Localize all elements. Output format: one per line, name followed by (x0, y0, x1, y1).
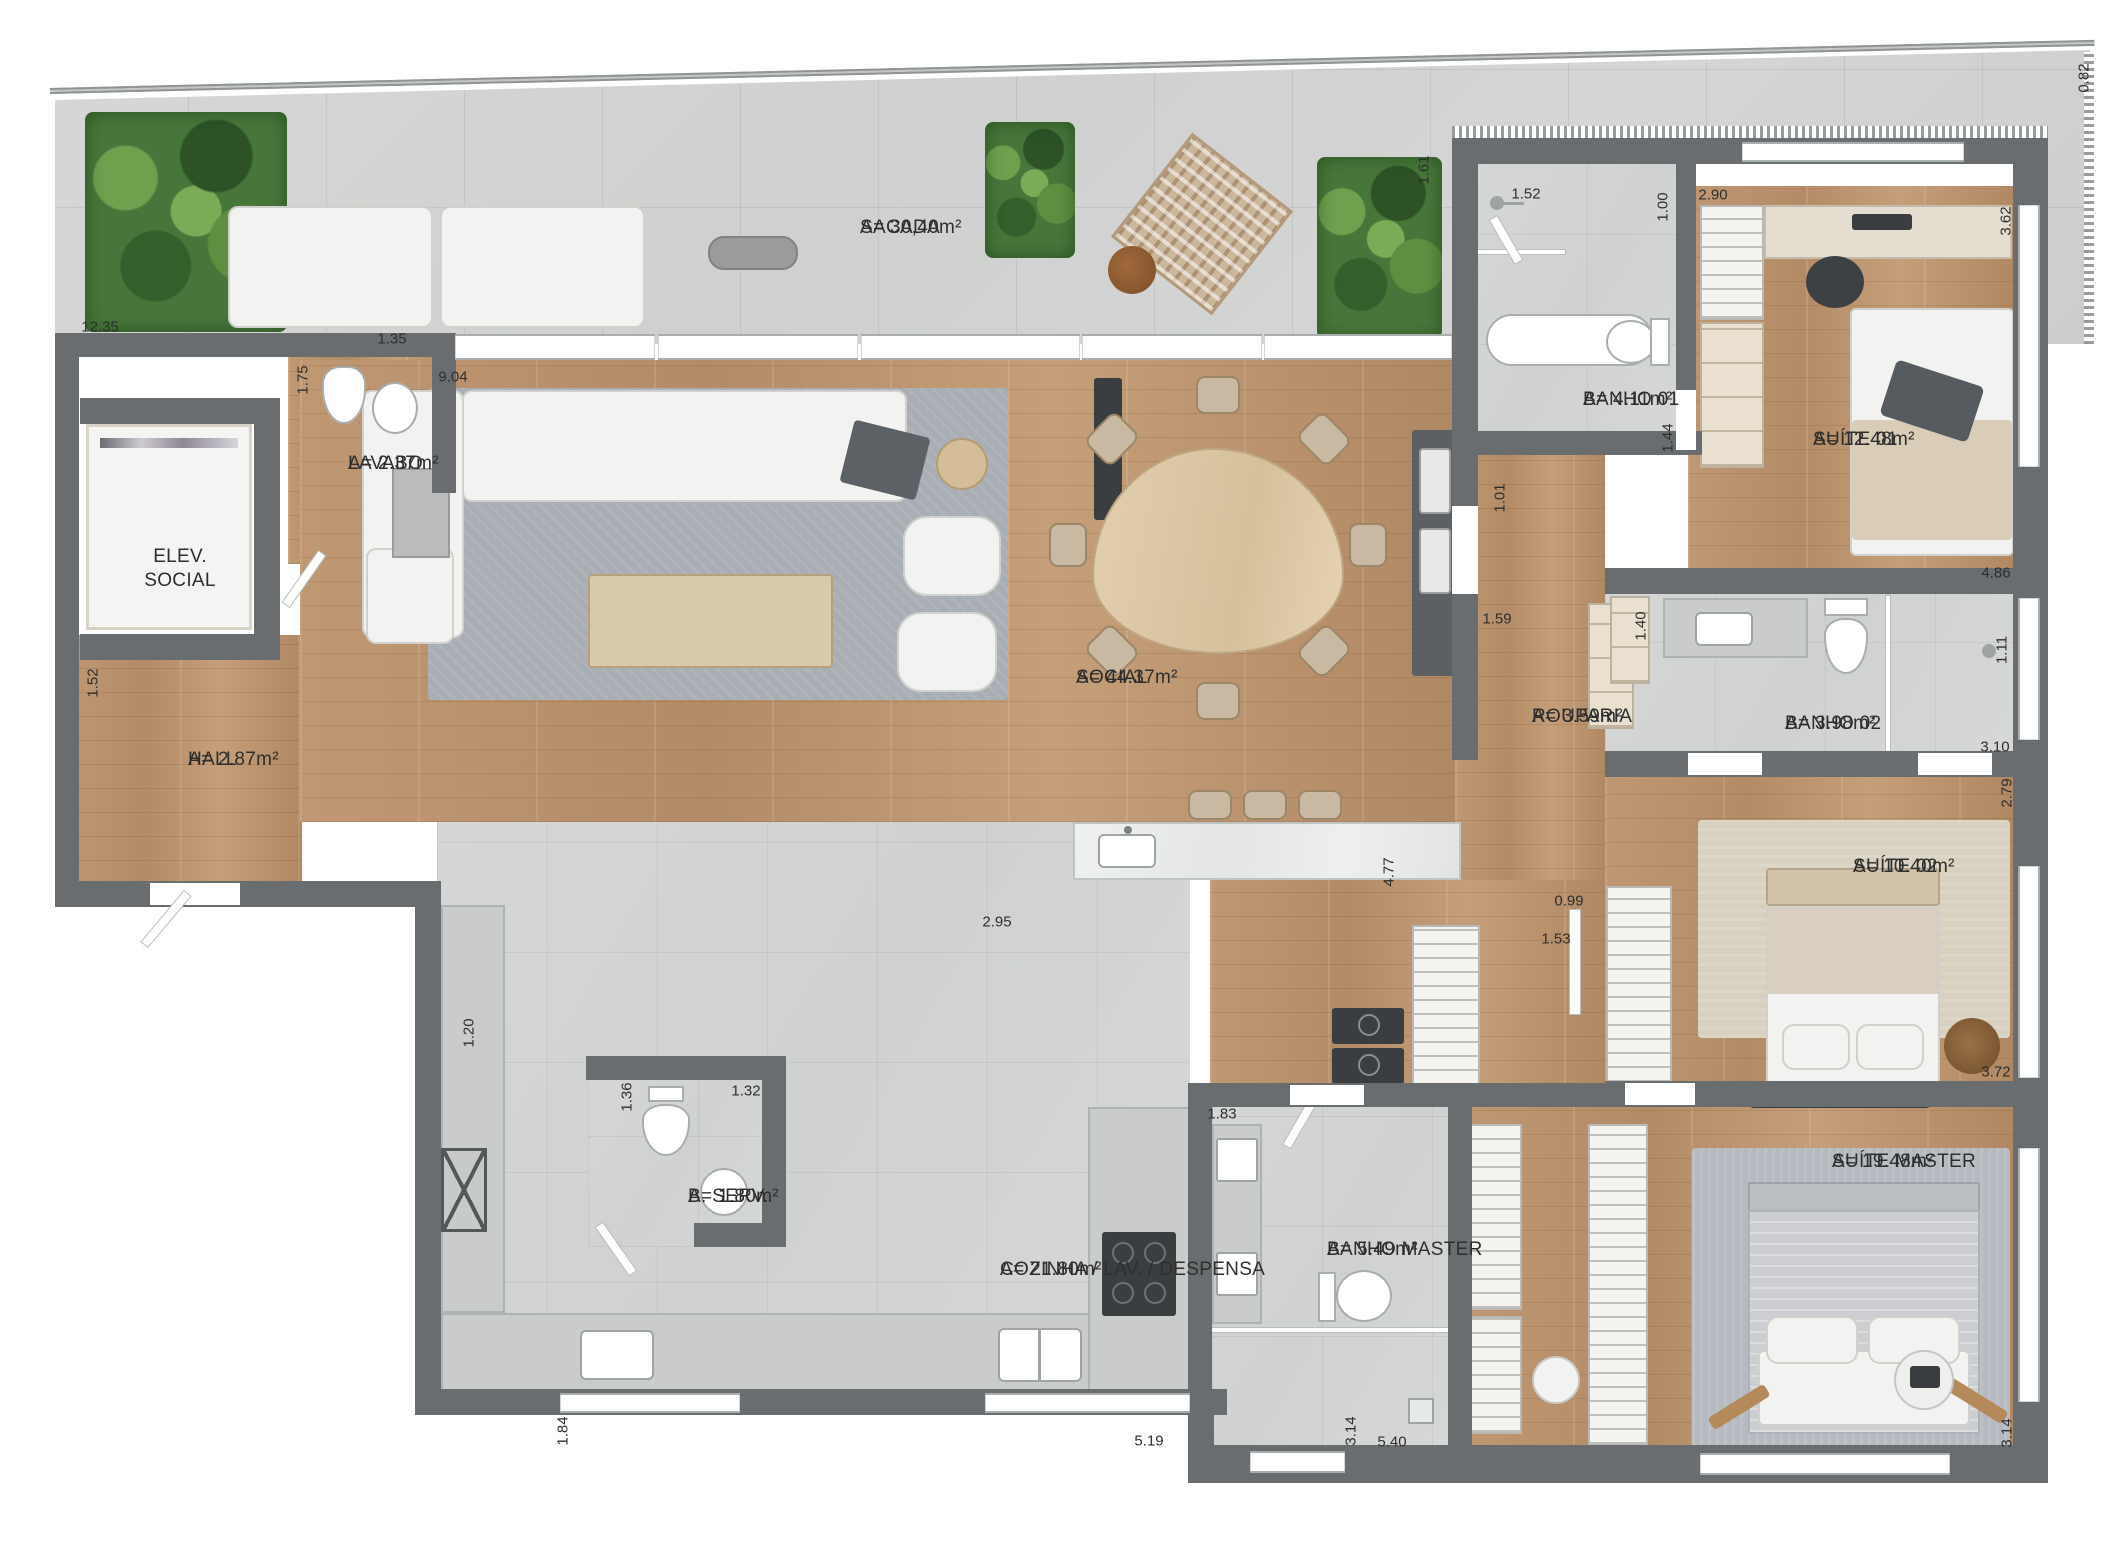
shower-glass-banho1 (1477, 250, 1565, 254)
banho2-toilet-tank (1824, 598, 1868, 616)
island-stool (1243, 790, 1287, 820)
dim-label: 1.53 (1541, 931, 1570, 948)
window (560, 1393, 740, 1413)
dryer-door (1358, 1054, 1380, 1076)
dim-label: 1.83 (1207, 1106, 1236, 1123)
window (2018, 205, 2040, 467)
window (1082, 334, 1262, 360)
balcony-pouf (1108, 246, 1156, 294)
elevator-door-bar (100, 438, 238, 448)
door-gap (1918, 753, 1992, 775)
room-area: A= 5.49m² (1327, 1238, 1418, 1262)
dim-label: 1.59 (1482, 611, 1511, 628)
dim-label: 3.14 (1343, 1416, 1360, 1445)
terrace-railing-right (2084, 52, 2094, 344)
master-headboard (1748, 1182, 1980, 1212)
dim-label: 2.95 (982, 914, 1011, 931)
fridge-door-2 (1419, 528, 1451, 594)
dim-label: 12.35 (81, 319, 119, 336)
kitchen-counter-left (441, 905, 505, 1313)
dim-label: 2.79 (1999, 778, 2016, 807)
door-gap (1452, 506, 1478, 594)
banho1-toilet-bowl (1606, 320, 1656, 364)
room-area: A= 21.80m² (1000, 1258, 1102, 1282)
dim-label: 1.36 (619, 1082, 636, 1111)
window (1264, 334, 1452, 360)
dim-label: 2.90 (1698, 187, 1727, 204)
lavabo-sink (372, 382, 418, 434)
window (2018, 1148, 2040, 1402)
banho1-toilet-tank (1650, 318, 1670, 366)
suite1-closet (1700, 205, 1764, 320)
room-area: A= 44.37m² (1076, 666, 1178, 690)
floor-plan: SACADA A= 30,40m² LAVABO A= 2.37m² ELEV.… (0, 0, 2103, 1554)
kitchen-sink (580, 1330, 654, 1380)
washer-door (1358, 1014, 1380, 1036)
wall (1448, 1107, 1472, 1447)
sofa-top (462, 390, 907, 502)
dim-label: 0.99 (1554, 893, 1583, 910)
laundry-corridor-floor (1210, 880, 1605, 1085)
dim-label: 0.82 (2076, 63, 2093, 92)
dim-label: 1.44 (1660, 423, 1677, 452)
bserv-toilet-tank (648, 1086, 684, 1102)
room-area: A= 4.11m² (1583, 388, 1672, 412)
banho2-sink (1695, 612, 1753, 646)
dining-chair (1349, 523, 1387, 567)
master-tablet (1910, 1366, 1940, 1388)
window (1742, 142, 1964, 162)
dim-label: 1.35 (377, 331, 406, 348)
banho-master-toilet-bowl (1336, 1270, 1392, 1322)
wall (415, 881, 441, 1409)
island-sink (1098, 834, 1156, 868)
room-area: A= 2.87m² (188, 748, 279, 772)
master-pillow (1766, 1316, 1858, 1364)
dim-label: 1.20 (461, 1018, 478, 1047)
burner (1112, 1282, 1134, 1304)
wall (254, 398, 280, 660)
bserv-floor (588, 1078, 762, 1247)
wall (55, 881, 427, 907)
master-closet-right (1588, 1124, 1648, 1446)
balcony-coffee-table (708, 236, 798, 270)
window (1700, 1453, 1950, 1475)
room-area: A= 10.40m² (1853, 855, 1955, 879)
door-gap (1290, 1085, 1364, 1105)
lounge-chair (366, 548, 454, 644)
dim-label: 4.86 (1981, 565, 2010, 582)
corridor-closet (1412, 925, 1480, 1087)
room-area: A= 30,40m² (860, 216, 962, 240)
suite2-pillow (1856, 1024, 1924, 1070)
dim-label: 1.84 (555, 1416, 572, 1445)
suite2-closet (1606, 886, 1672, 1084)
elevator-social-cab (86, 424, 252, 630)
dim-label: 1.52 (1511, 186, 1540, 203)
window (1250, 1451, 1345, 1473)
banho2-shower-glass (1886, 596, 1890, 754)
window (861, 334, 1080, 360)
dining-chair (1196, 376, 1240, 414)
door-gap (150, 883, 240, 905)
balcony-sofa-1 (228, 206, 433, 328)
window (2018, 866, 2040, 1078)
wall (1188, 1389, 1214, 1449)
room-name: ELEV. SOCIAL (125, 545, 235, 593)
room-area: A= 1.80m² (688, 1185, 779, 1209)
armchair-1 (903, 516, 1001, 596)
dining-chair (1049, 523, 1087, 567)
door-gap (1688, 753, 1762, 775)
fridge-door-1 (1419, 448, 1451, 514)
banho-master-drain (1408, 1398, 1434, 1424)
room-area: A= 2.37m² (348, 452, 439, 476)
wall (80, 398, 280, 424)
banho-master-shower-glass (1212, 1328, 1448, 1332)
wall (586, 1056, 786, 1080)
dim-label: 1.01 (1492, 483, 1509, 512)
room-area: A= 19.48m² (1832, 1150, 1934, 1174)
room-area: A= 12.48m² (1813, 428, 1915, 452)
master-stool (1532, 1356, 1580, 1404)
window (658, 334, 858, 360)
dim-label: 1.32 (731, 1083, 760, 1100)
dim-label: 4.77 (1381, 857, 1398, 886)
dim-label: 5.19 (1134, 1433, 1163, 1450)
dim-label: 5.40 (1377, 1434, 1406, 1451)
window (2018, 598, 2040, 740)
banho-master-toilet-tank (1318, 1272, 1336, 1322)
suite1-monitor (1852, 214, 1912, 230)
dim-label: 3.14 (1999, 1418, 2016, 1447)
suite1-desk-chair (1806, 256, 1864, 308)
dim-label: 1.00 (1655, 192, 1672, 221)
door-gap (1625, 1083, 1695, 1105)
dim-label: 9.04 (438, 369, 467, 386)
service-elevator-panel (441, 1148, 487, 1232)
suite2-pillow (1782, 1024, 1850, 1070)
wall (55, 333, 79, 907)
dim-label: 1.61 (1416, 155, 1433, 184)
island-stool (1188, 790, 1232, 820)
side-table (936, 438, 988, 490)
island-stool (1298, 790, 1342, 820)
wall (80, 634, 280, 660)
balcony-sofa-2 (440, 206, 645, 328)
suite2-blanket (1768, 908, 1938, 994)
dim-label: 1.75 (295, 365, 312, 394)
room-area: A= 3.59m² (1532, 705, 1623, 729)
window (985, 1393, 1190, 1413)
dim-label: 3.62 (1998, 206, 2015, 235)
dim-label: 1.11 (1994, 636, 2011, 664)
wall (694, 1223, 786, 1247)
room-area: A= 3.98m² (1785, 712, 1876, 736)
island-faucet (1124, 826, 1132, 834)
suite1-shelves (1700, 322, 1764, 468)
suite2-hall-door (1570, 910, 1580, 1014)
dim-label: 3.10 (1980, 739, 2009, 756)
dim-label: 1.52 (85, 668, 102, 697)
dim-label: 3.72 (1981, 1064, 2010, 1081)
banho-master-sink-1 (1216, 1138, 1258, 1182)
planter-middle (985, 122, 1075, 258)
dining-chair (1196, 682, 1240, 720)
kitchen-floor (437, 822, 1190, 1393)
coffee-table (588, 574, 833, 668)
burner (1144, 1282, 1166, 1304)
dim-label: 1.40 (1633, 611, 1650, 640)
wall (1188, 1083, 1612, 1107)
armchair-2 (897, 612, 997, 692)
wall (1452, 594, 1478, 760)
double-sink-divider (1038, 1330, 1041, 1380)
window (455, 334, 655, 360)
